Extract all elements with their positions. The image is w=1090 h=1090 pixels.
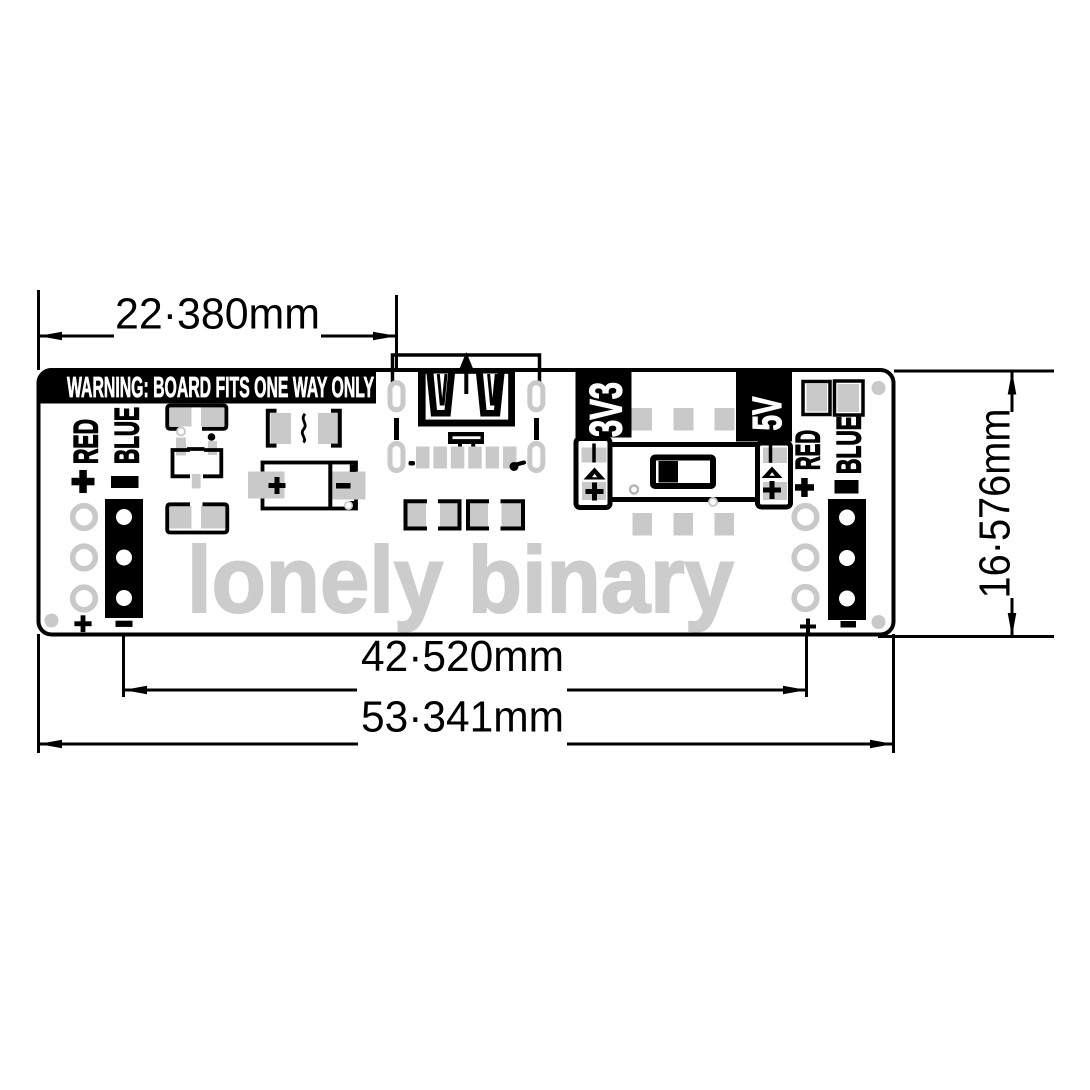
svg-text:3V3: 3V3 [581, 382, 632, 437]
svg-text:WARNING: BOARD FITS ONE WAY ON: WARNING: BOARD FITS ONE WAY ONLY [67, 372, 374, 404]
svg-text:5V: 5V [744, 396, 790, 430]
svg-text:16·576mm: 16·576mm [971, 409, 1020, 599]
svg-text:22·380mm: 22·380mm [115, 290, 320, 339]
svg-text:53·341mm: 53·341mm [361, 693, 564, 742]
svg-text:42·520mm: 42·520mm [361, 632, 564, 681]
svg-text:RED: RED [68, 419, 106, 464]
svg-text:BLUE: BLUE [831, 416, 869, 474]
svg-text:BLUE: BLUE [109, 407, 147, 464]
svg-text:RED: RED [790, 430, 828, 470]
svg-text:lonely binary: lonely binary [187, 527, 734, 632]
